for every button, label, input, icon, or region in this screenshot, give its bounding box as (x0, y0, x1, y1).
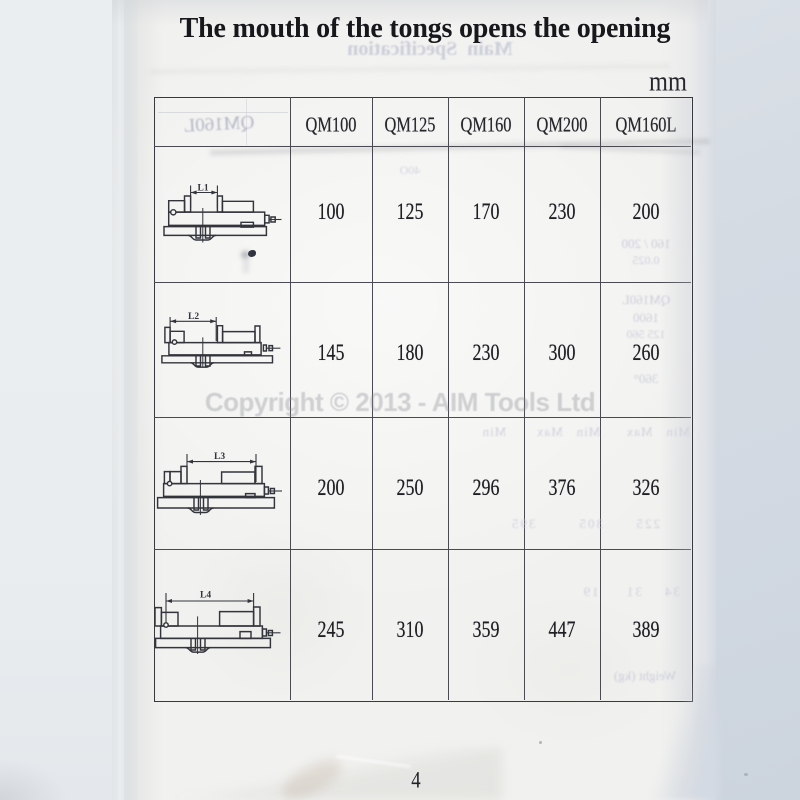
svg-text:L3: L3 (214, 452, 225, 462)
svg-text:L1: L1 (198, 184, 209, 194)
svg-text:L4: L4 (200, 591, 211, 601)
svg-text:L2: L2 (188, 312, 199, 322)
